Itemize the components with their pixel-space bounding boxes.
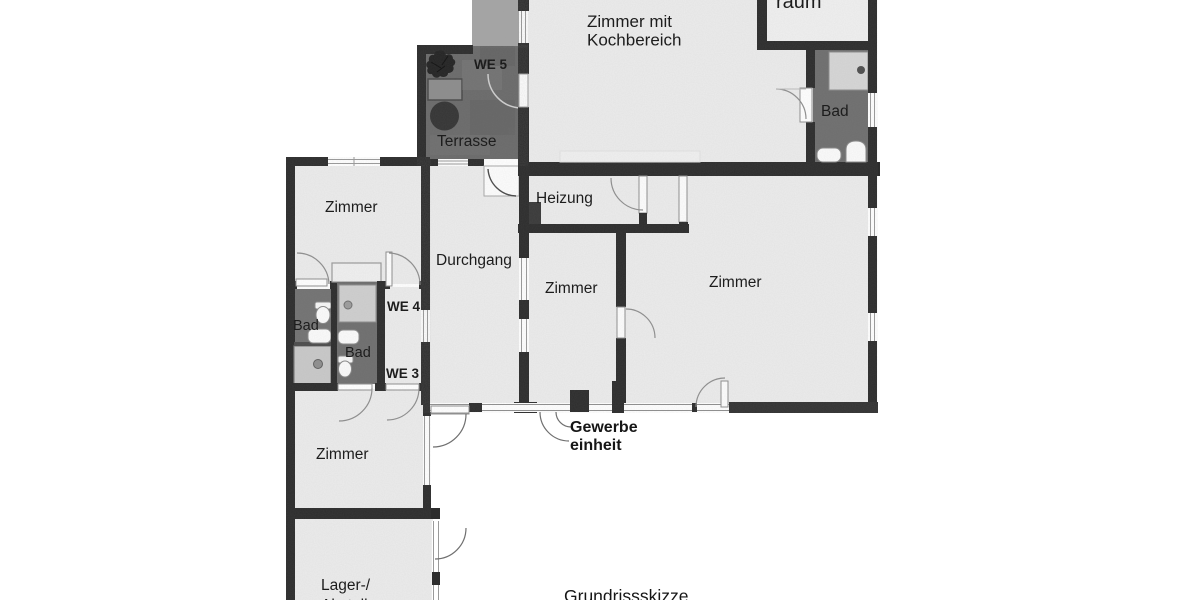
svg-text:einheit: einheit [570, 437, 622, 454]
svg-text:Grundrissskizze: Grundrissskizze [564, 586, 688, 600]
svg-text:Gewerbe: Gewerbe [570, 419, 638, 436]
